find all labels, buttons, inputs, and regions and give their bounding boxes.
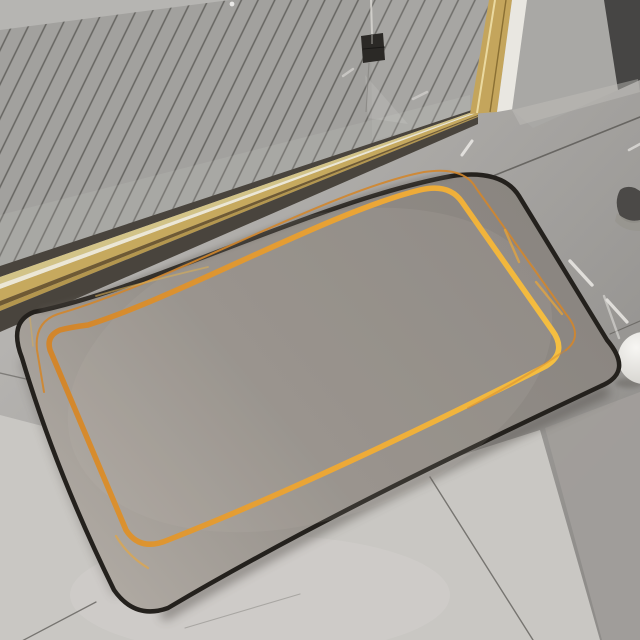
glass-edge-highlight: [371, 0, 372, 34]
water-speck: [230, 2, 235, 7]
door-hinge-clamp: [361, 33, 385, 63]
dark-object: [615, 187, 640, 231]
bathroom-photo: [0, 0, 640, 640]
scene-canvas: [0, 0, 640, 640]
